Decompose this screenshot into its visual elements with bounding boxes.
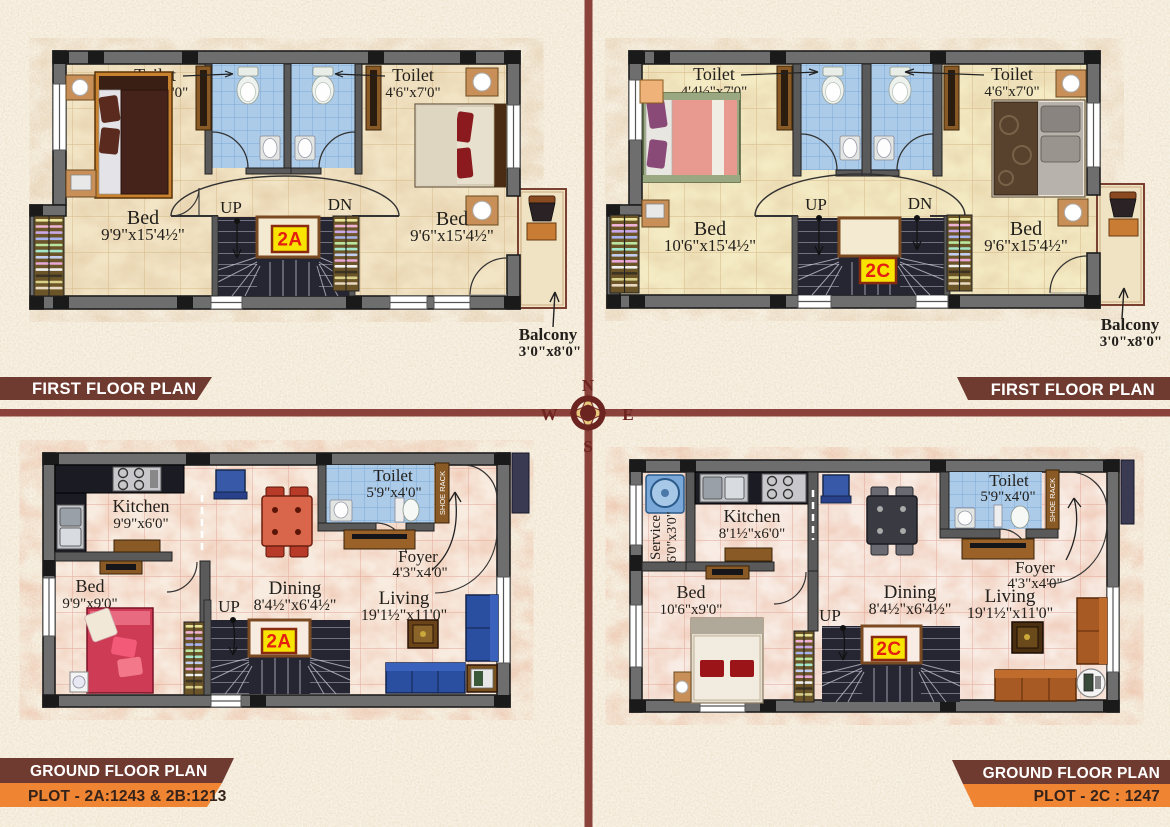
svg-text:PLOT - 2C : 1247: PLOT - 2C : 1247 [1034, 788, 1160, 805]
svg-text:W: W [541, 405, 558, 424]
svg-text:Foyer: Foyer [398, 547, 438, 566]
svg-text:Living: Living [985, 586, 1036, 607]
svg-text:9'9"x15'4½": 9'9"x15'4½" [101, 225, 185, 244]
svg-text:GROUND FLOOR PLAN: GROUND FLOOR PLAN [983, 765, 1160, 782]
svg-text:PLOT - 2A:1243 & 2B:1213: PLOT - 2A:1243 & 2B:1213 [28, 788, 227, 805]
svg-text:9'6"x15'4½": 9'6"x15'4½" [410, 226, 494, 245]
svg-text:4'6"x7'0": 4'6"x7'0" [385, 85, 440, 101]
svg-text:Toilet: Toilet [373, 466, 413, 485]
svg-text:S: S [583, 437, 592, 456]
svg-text:N: N [582, 376, 595, 395]
svg-text:Balcony: Balcony [1101, 315, 1160, 334]
svg-text:3'0"x8'0": 3'0"x8'0" [519, 344, 582, 360]
svg-text:Service: Service [648, 515, 664, 560]
svg-text:4'3"x4'0": 4'3"x4'0" [392, 565, 447, 581]
svg-text:9'6"x15'4½": 9'6"x15'4½" [984, 236, 1068, 255]
svg-text:Dining: Dining [884, 582, 937, 603]
svg-text:Bed: Bed [76, 576, 105, 596]
svg-text:2C: 2C [865, 261, 890, 282]
svg-text:2A: 2A [266, 632, 291, 653]
svg-text:Bed: Bed [677, 582, 706, 602]
svg-text:E: E [622, 405, 633, 424]
svg-text:Living: Living [379, 588, 430, 609]
svg-text:2C: 2C [876, 639, 901, 660]
svg-text:DN: DN [908, 194, 933, 213]
svg-text:6'0"x3'0": 6'0"x3'0" [665, 512, 680, 563]
svg-text:Dining: Dining [269, 578, 322, 599]
svg-text:FIRST FLOOR PLAN: FIRST FLOOR PLAN [32, 380, 196, 398]
svg-text:Toilet: Toilet [989, 471, 1029, 490]
svg-text:5'9"x4'0": 5'9"x4'0" [366, 485, 421, 501]
svg-text:Toilet: Toilet [693, 64, 735, 84]
svg-text:SHOE RACK: SHOE RACK [1048, 478, 1057, 522]
svg-text:UP: UP [805, 195, 827, 214]
svg-text:Balcony: Balcony [519, 325, 578, 344]
svg-text:FIRST FLOOR PLAN: FIRST FLOOR PLAN [991, 381, 1155, 399]
svg-text:4'6"x7'0": 4'6"x7'0" [984, 84, 1039, 100]
svg-text:Toilet: Toilet [991, 64, 1033, 84]
svg-text:10'6"x15'4½": 10'6"x15'4½" [664, 236, 756, 255]
svg-text:UP: UP [218, 597, 240, 616]
svg-text:UP: UP [220, 198, 242, 217]
svg-text:9'9"x6'0": 9'9"x6'0" [113, 516, 168, 532]
svg-text:GROUND FLOOR PLAN: GROUND FLOOR PLAN [30, 763, 207, 780]
svg-text:SHOE RACK: SHOE RACK [438, 471, 447, 515]
svg-text:5'9"x4'0": 5'9"x4'0" [980, 489, 1035, 505]
svg-text:2A: 2A [277, 230, 302, 251]
svg-text:Toilet: Toilet [392, 65, 434, 85]
svg-text:DN: DN [328, 195, 353, 214]
svg-text:Kitchen: Kitchen [113, 496, 170, 516]
svg-text:8'4½"x6'4½": 8'4½"x6'4½" [254, 597, 337, 614]
svg-text:10'6"x9'0": 10'6"x9'0" [660, 602, 723, 618]
svg-text:3'0"x8'0": 3'0"x8'0" [1100, 334, 1163, 350]
svg-text:19'1½"x11'0": 19'1½"x11'0" [967, 605, 1053, 622]
svg-text:Kitchen: Kitchen [724, 506, 781, 526]
svg-text:8'4½"x6'4½": 8'4½"x6'4½" [869, 601, 952, 618]
svg-text:Foyer: Foyer [1015, 558, 1055, 577]
svg-text:UP: UP [819, 606, 841, 625]
svg-text:8'1½"x6'0": 8'1½"x6'0" [719, 526, 785, 542]
